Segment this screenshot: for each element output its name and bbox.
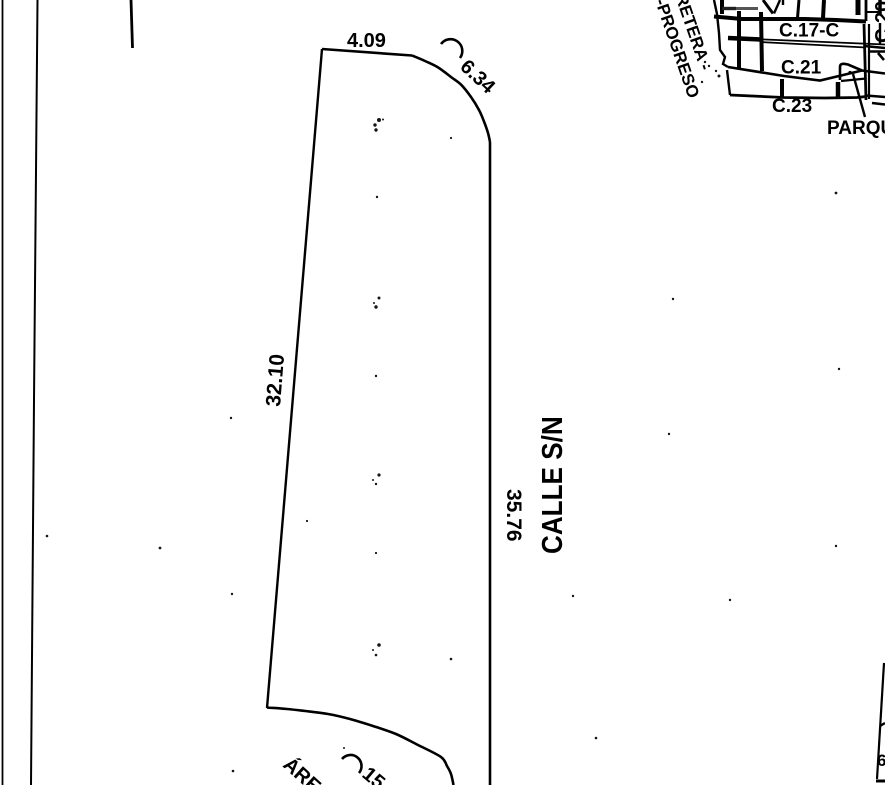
svg-text:C.23: C.23 bbox=[772, 96, 812, 117]
svg-text:C.17-C: C.17-C bbox=[779, 21, 839, 42]
svg-text:C.20: C.20 bbox=[872, 1, 885, 43]
svg-text:4.09: 4.09 bbox=[347, 30, 386, 52]
svg-text:CALLE S/N: CALLE S/N bbox=[536, 416, 569, 554]
svg-text:32.10: 32.10 bbox=[262, 353, 289, 407]
svg-text:35.76: 35.76 bbox=[502, 489, 525, 542]
svg-text:PARQUE: PARQUE bbox=[827, 118, 885, 139]
svg-text:6: 6 bbox=[877, 751, 885, 770]
